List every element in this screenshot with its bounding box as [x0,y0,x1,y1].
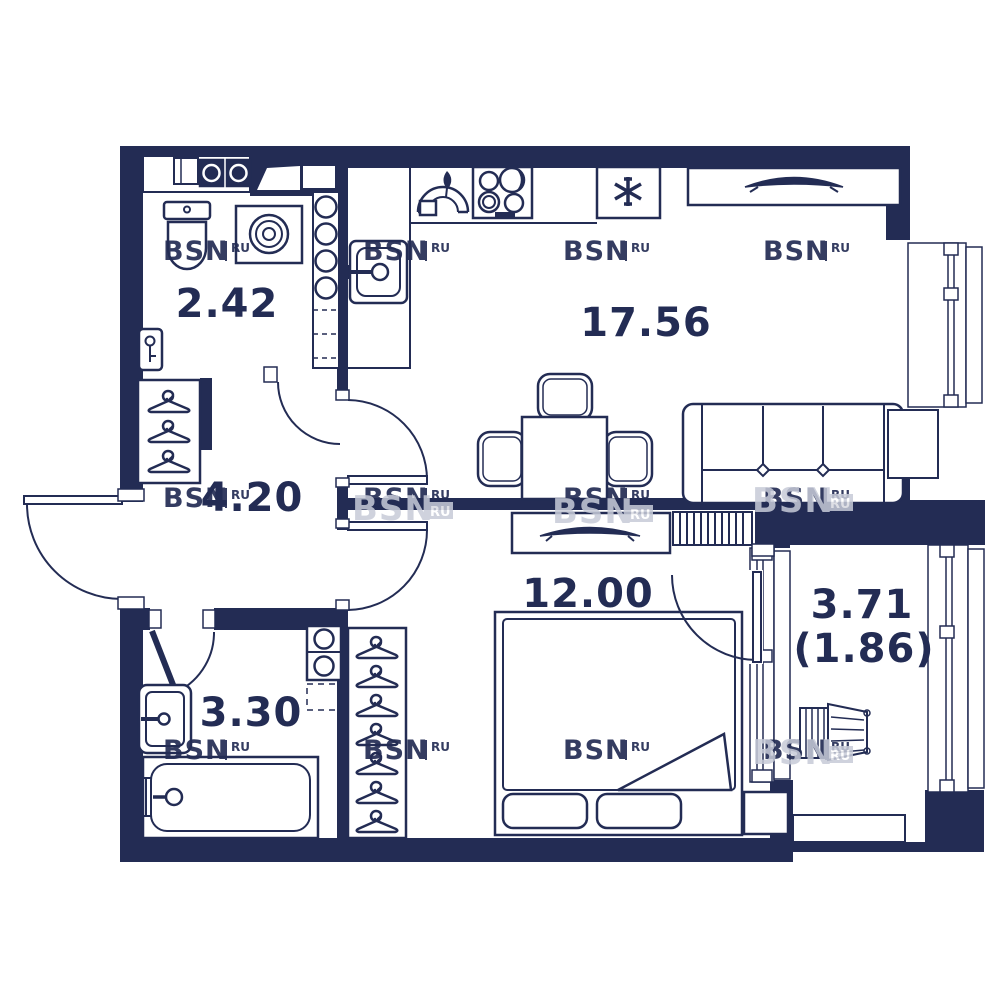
svg-text:BSN: BSN [552,492,634,532]
tv-console-living [688,168,900,205]
svg-text:BSN: BSN [363,236,429,267]
watermark: BSNRU [363,236,450,267]
room-label-wc: 2.42 [176,281,279,327]
kitchen-counter-left [344,168,410,368]
room-label-bathroom: 3.30 [200,690,303,736]
wall-switch [139,329,162,370]
svg-text:BSN: BSN [752,481,834,521]
wall-bathroom-top-stub [120,608,150,630]
washer-dryer-stack [307,626,341,710]
svg-text:RU: RU [631,241,650,255]
bedroom-wardrobe [348,628,406,838]
svg-text:RU: RU [631,740,650,754]
svg-text:BSN: BSN [163,735,229,766]
bedroom-door [348,522,427,610]
room-label-bedroom: 12.00 [522,571,654,617]
door-arc [27,504,122,599]
svg-text:BSN: BSN [752,733,834,773]
fridge [597,167,660,218]
svg-text:BSN: BSN [352,489,434,529]
watermark: BSNRU [363,735,450,766]
floor-plan-page: BSNRUBSNRUBSNRUBSNRUBSNRUBSNRUBSNRUBSNRU… [0,0,1000,1000]
svg-text:BSN: BSN [363,735,429,766]
svg-text:RU: RU [231,740,250,754]
door-leaf [24,496,122,504]
room-label-hallway: 4.20 [201,475,304,521]
balcony-glazing [928,545,984,792]
watermark: BSNRU [763,236,850,267]
radiator [673,512,752,545]
svg-text:RU: RU [430,505,451,520]
svg-text:BSN: BSN [163,236,229,267]
living-door [348,400,427,484]
svg-text:RU: RU [630,508,651,523]
pillow [597,794,681,828]
stove [473,167,532,218]
bathtub [141,757,318,838]
floor-plan: BSNRUBSNRUBSNRUBSNRUBSNRUBSNRUBSNRUBSNRU… [0,0,1000,1000]
entrance-door [24,496,122,599]
room-label-balcony-reduced: (1.86) [793,626,934,672]
bed [495,612,742,835]
svg-text:BSN: BSN [763,236,829,267]
wall-hall-stub [200,378,212,450]
balcony-bench [793,815,905,842]
svg-text:RU: RU [830,497,851,512]
hallway-wardrobe [138,380,200,483]
svg-text:BSN: BSN [563,236,629,267]
room-label-kitchen-living: 17.56 [580,300,712,346]
wc-door-arc [278,382,340,444]
svg-text:RU: RU [431,241,450,255]
wall-bottom [120,838,793,862]
wc-shelf-column [313,192,339,368]
svg-text:RU: RU [431,740,450,754]
living-window [908,243,982,407]
watermark: BSNRU [563,236,650,267]
svg-text:RU: RU [831,241,850,255]
svg-text:RU: RU [231,241,250,255]
dining-set [478,374,652,499]
exterior-ledge [888,410,938,478]
nightstand [744,792,788,834]
svg-text:RU: RU [830,749,851,764]
kitchen-faucet-icon [418,171,468,215]
pillow [503,794,587,828]
svg-text:BSN: BSN [563,735,629,766]
room-label-balcony: 3.71 [811,582,914,628]
wall-balcony-corner [925,790,984,846]
